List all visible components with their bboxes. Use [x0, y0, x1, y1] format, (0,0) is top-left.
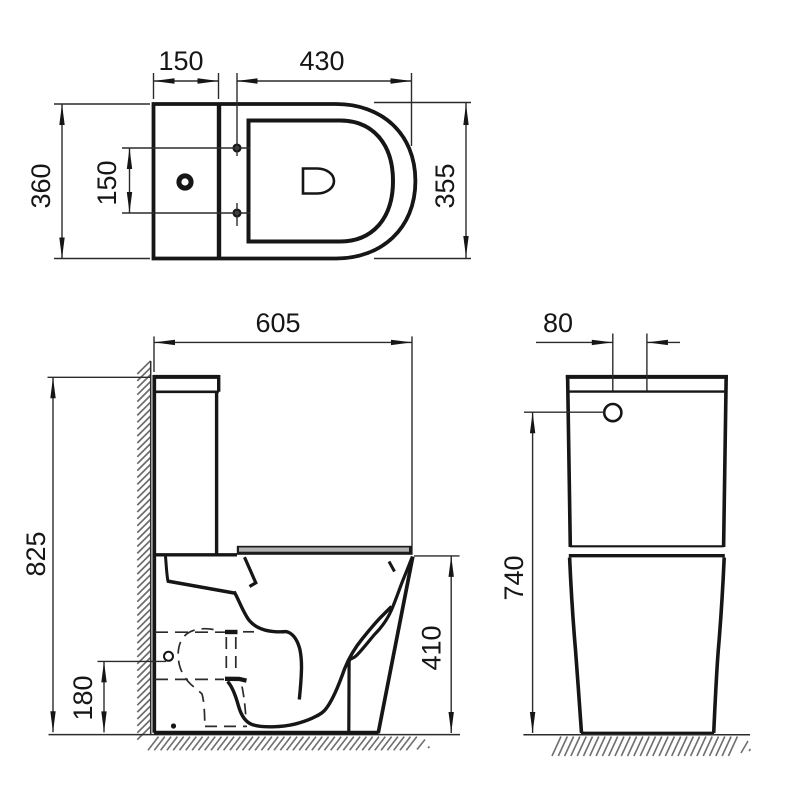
- svg-text:605: 605: [255, 308, 300, 338]
- svg-text:80: 80: [543, 308, 573, 338]
- svg-text:410: 410: [417, 625, 447, 670]
- svg-text:150: 150: [92, 160, 122, 205]
- svg-text:825: 825: [21, 531, 51, 576]
- svg-text:150: 150: [158, 46, 203, 76]
- svg-text:355: 355: [430, 163, 460, 208]
- svg-text:360: 360: [26, 163, 56, 208]
- svg-text:180: 180: [68, 675, 98, 720]
- svg-text:740: 740: [499, 555, 529, 600]
- svg-text:430: 430: [299, 46, 344, 76]
